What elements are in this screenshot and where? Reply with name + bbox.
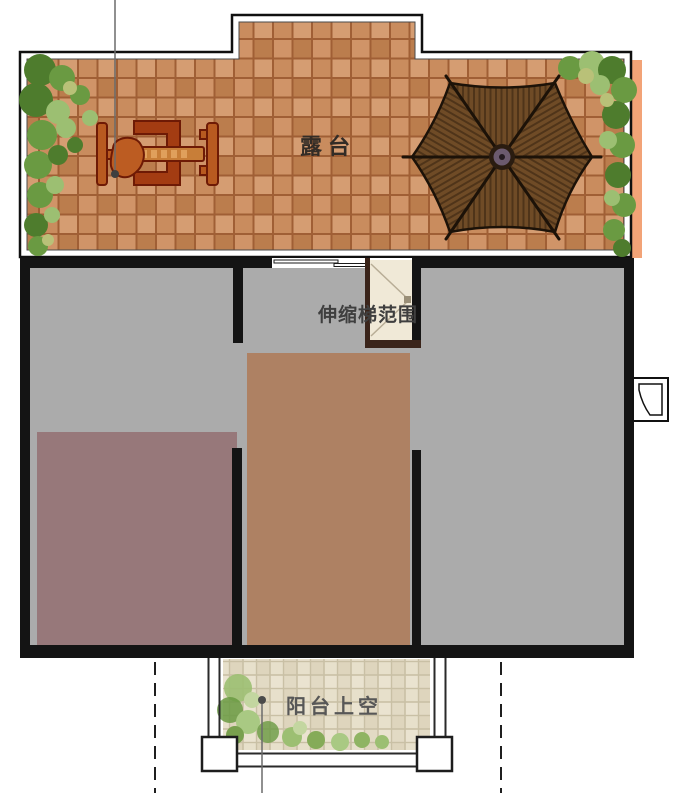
floor-plan-canvas: 露台 伸缩梯范围 阳台上空 — [0, 0, 688, 793]
partition-stub-right — [412, 450, 421, 645]
wall-west — [20, 258, 30, 658]
terrace-label: 露台 — [300, 129, 356, 161]
partition-stub-left — [232, 448, 242, 645]
balcony-column-left — [202, 737, 237, 771]
partition-stub-upper — [233, 268, 243, 343]
room-mauve — [37, 432, 237, 645]
balcony-void-label: 阳台上空 — [286, 690, 382, 719]
ladder-zone-label: 伸缩梯范围 — [318, 300, 418, 327]
floor-plan-drawing — [0, 0, 688, 793]
balcony-column-right — [417, 737, 452, 771]
room-brown — [247, 353, 410, 645]
flue-vent-icon — [633, 378, 668, 421]
wall-east — [624, 258, 634, 658]
balcony-area — [202, 658, 452, 793]
wall-south — [20, 645, 634, 658]
